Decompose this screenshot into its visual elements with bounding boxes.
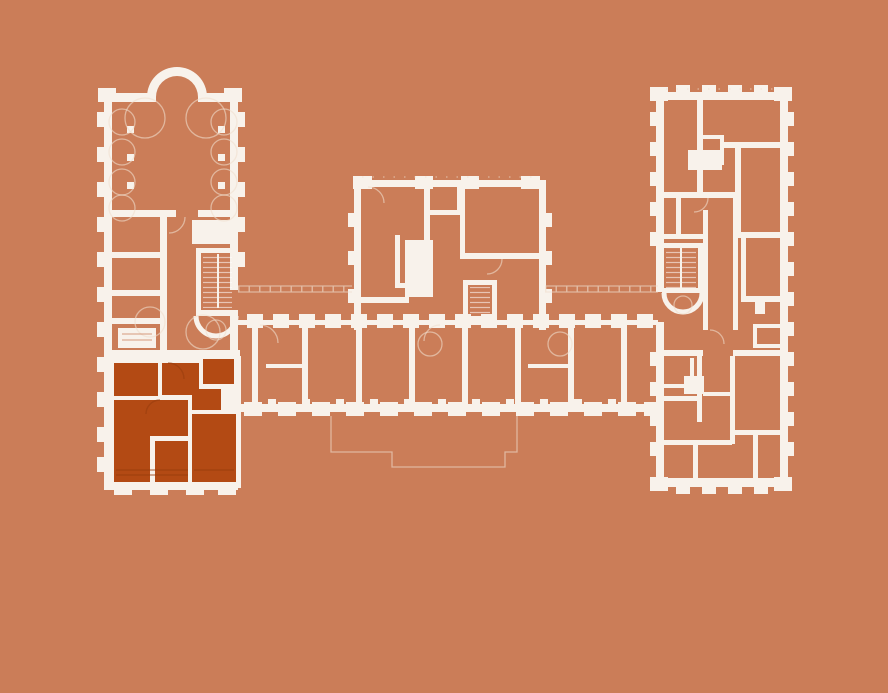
highlighted-rooms[interactable] [114, 359, 236, 482]
floor-plan-canvas [0, 0, 888, 693]
highlighted-room [192, 389, 221, 410]
piano-object [118, 328, 156, 348]
highlighted-room [203, 359, 234, 384]
highlighted-apartment[interactable] [104, 356, 241, 488]
highlighted-room [192, 414, 236, 482]
central-stair-hall [405, 240, 433, 297]
highlighted-room [114, 363, 158, 396]
